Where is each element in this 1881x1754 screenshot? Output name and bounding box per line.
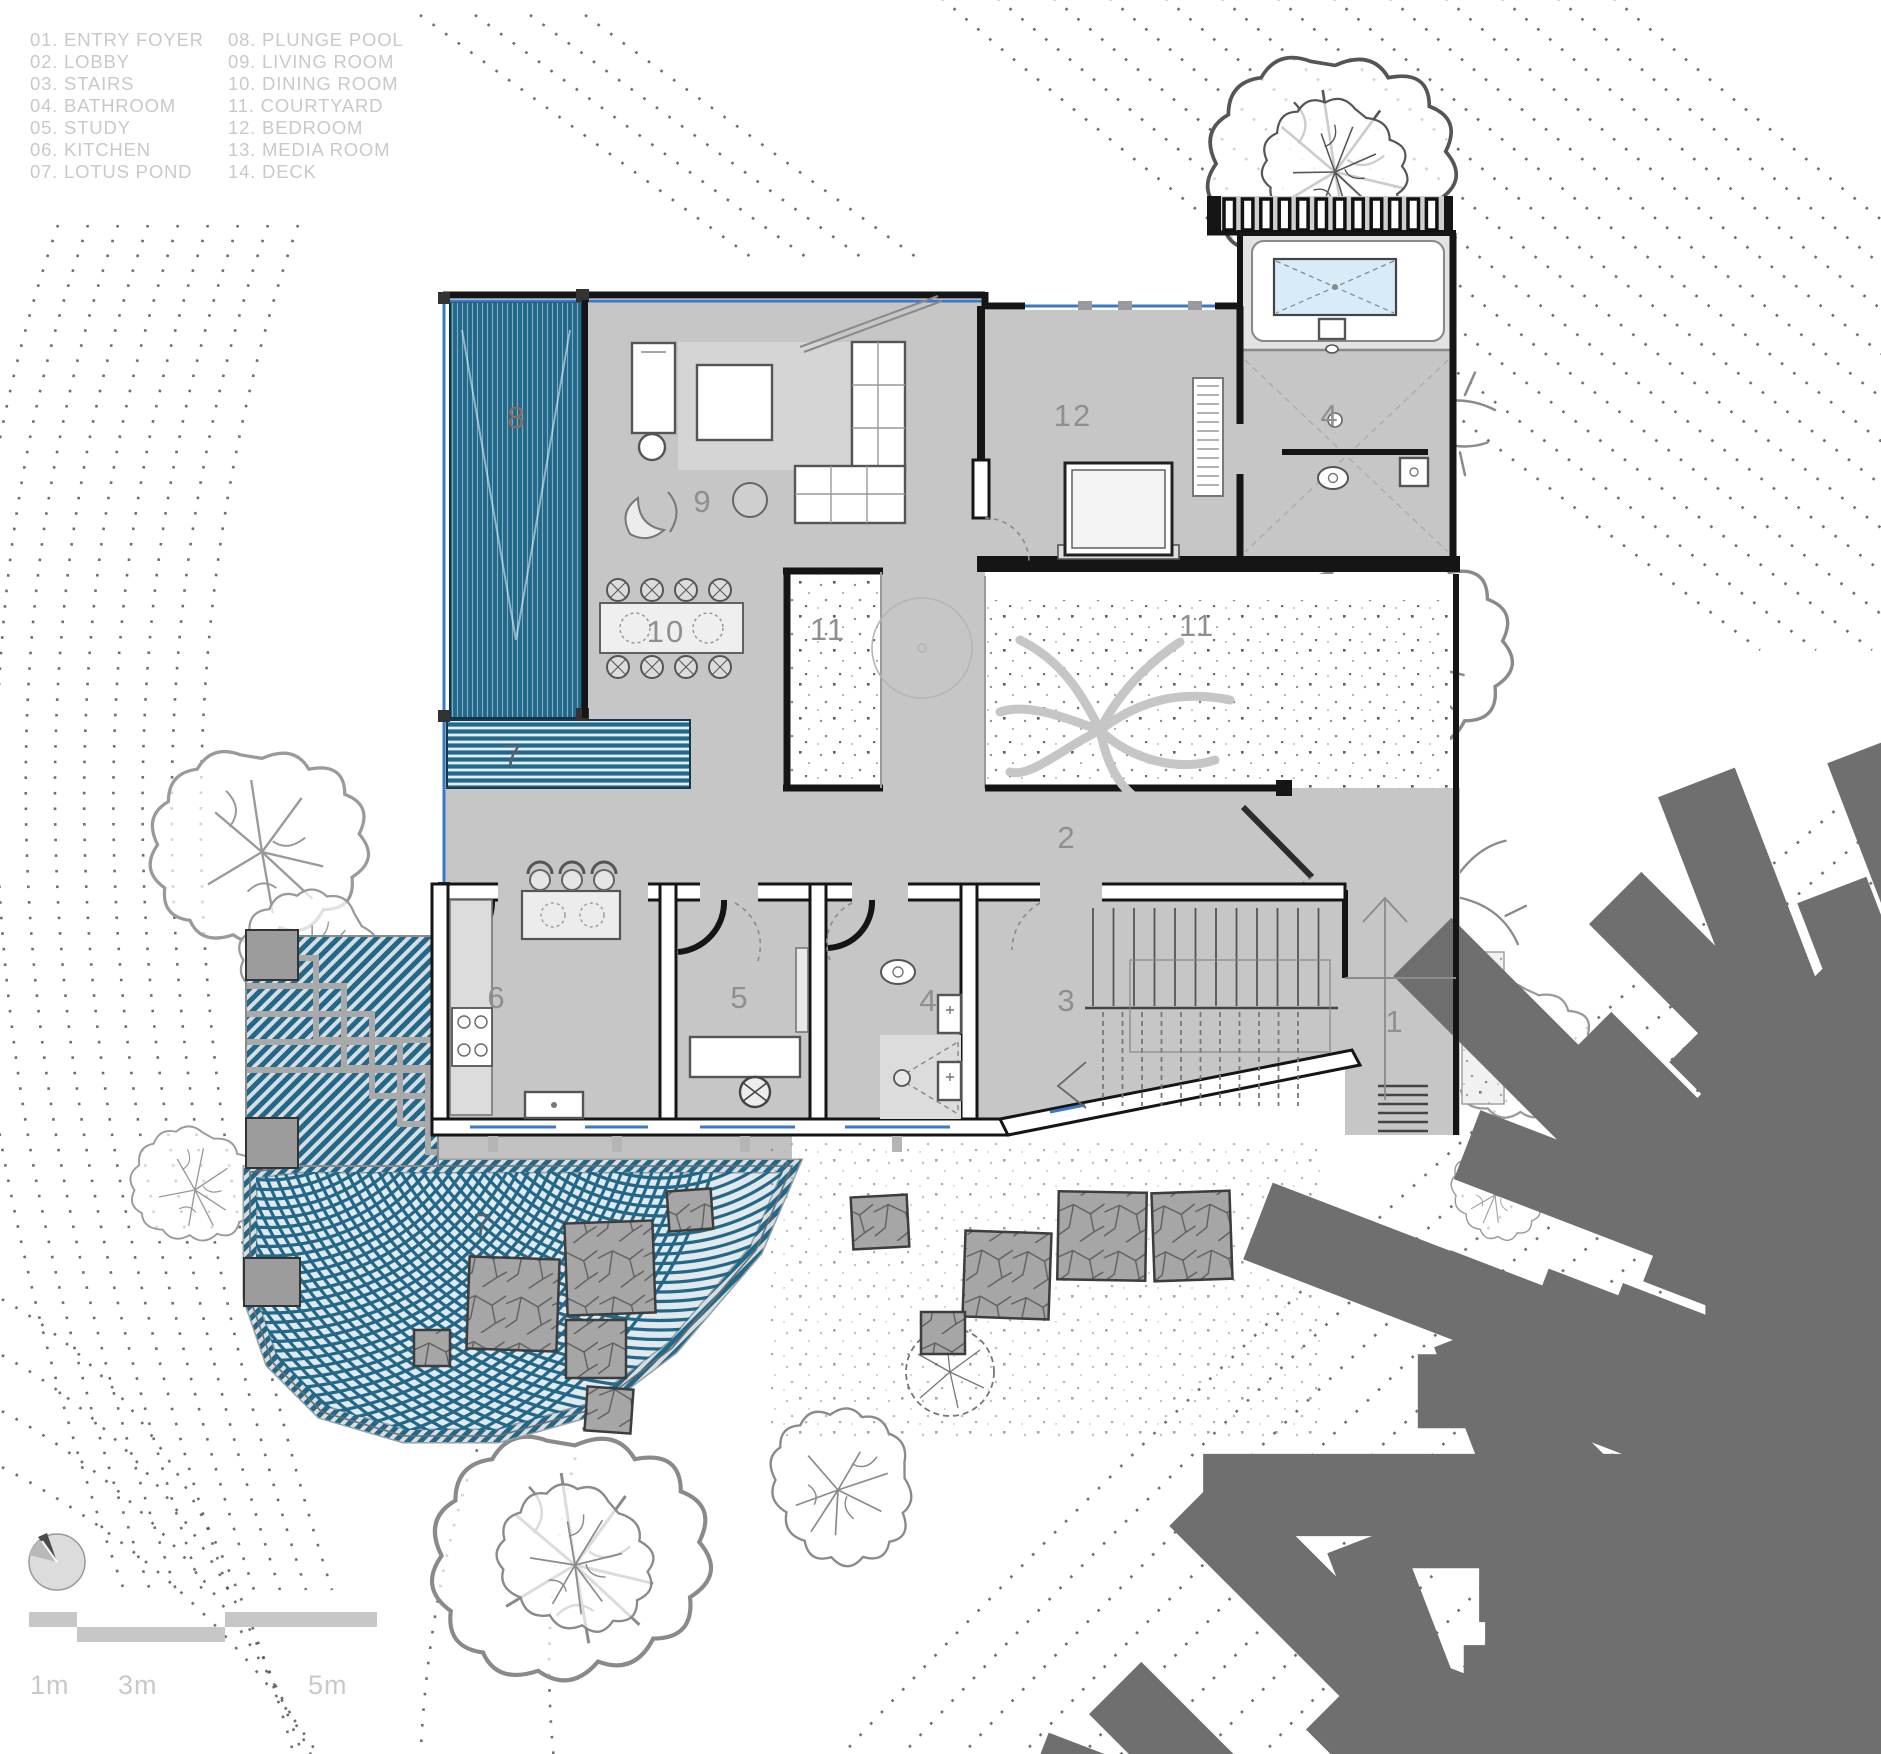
room-label-entry: 1 — [1385, 1004, 1404, 1039]
legend-item: 13. MEDIA ROOM — [228, 139, 390, 160]
deck-slat — [1261, 199, 1272, 230]
north-indicator — [29, 1533, 85, 1590]
planter-block — [246, 930, 298, 980]
lotus-pond-upper — [447, 720, 690, 788]
toilet — [1318, 467, 1348, 489]
legend-item: 08. PLUNGE POOL — [228, 29, 403, 50]
legend-item: 07. LOTUS POND — [30, 161, 192, 182]
sink — [1400, 458, 1428, 486]
room-label-stairs: 3 — [1057, 983, 1076, 1018]
planter-block — [246, 1118, 298, 1168]
deck-slat — [1353, 199, 1364, 230]
bed — [1072, 470, 1165, 548]
deck-slat — [1371, 199, 1382, 230]
room-label-study: 5 — [730, 980, 749, 1015]
legend-item: 09. LIVING ROOM — [228, 51, 394, 72]
side-table — [639, 434, 665, 460]
wardrobe — [1193, 378, 1223, 496]
room-label-dining: 10 — [647, 614, 685, 649]
deck-slat — [1426, 199, 1437, 230]
courtyard-left — [783, 568, 883, 790]
planter-block — [244, 1258, 300, 1306]
coffee-table — [697, 365, 772, 440]
stove — [452, 1008, 492, 1066]
room-label-courtyard-left: 11 — [810, 612, 846, 647]
kitchen-island — [522, 891, 620, 939]
legend-item: 05. STUDY — [30, 117, 131, 138]
desk — [690, 1037, 800, 1077]
legend-item: 12. BEDROOM — [228, 117, 363, 138]
deck-slat — [1298, 199, 1309, 230]
legend-item: 11. COURTYARD — [228, 95, 383, 116]
shelf — [796, 948, 808, 1032]
scale-label-3m: 3m — [118, 1670, 158, 1700]
deck-slat — [1408, 199, 1419, 230]
daybed — [632, 343, 675, 433]
floor-plan-sheet: 8 9 10 11 11 12 4 7 2 6 5 4 3 1 7 01. EN… — [0, 0, 1881, 1754]
room-label-lotus-upper: 7 — [503, 738, 522, 773]
floor-plan-drawing: 8 9 10 11 11 12 4 7 2 6 5 4 3 1 7 01. EN… — [0, 0, 1881, 1754]
deck-slat — [1334, 199, 1345, 230]
room-label-courtyard-right: 11 — [1179, 608, 1215, 643]
room-label-lotus-lower: 7 — [473, 1207, 492, 1242]
scale-label-1m: 1m — [30, 1670, 70, 1700]
deck-slat — [1242, 199, 1253, 230]
deck-slat — [1390, 199, 1401, 230]
legend-item: 10. DINING ROOM — [228, 73, 398, 94]
legend-item: 04. BATHROOM — [30, 95, 176, 116]
room-label-bedroom: 12 — [1054, 398, 1092, 433]
legend-item: 06. KITCHEN — [30, 139, 151, 160]
legend-item: 03. STAIRS — [30, 73, 134, 94]
deck-slat — [1316, 199, 1327, 230]
bathtub-room — [1252, 241, 1444, 353]
deck-slat — [1279, 199, 1290, 230]
room-label-living: 9 — [693, 484, 712, 519]
plunge-pool — [450, 302, 582, 718]
legend-item: 01. ENTRY FOYER — [30, 29, 204, 50]
legend-item: 02. LOBBY — [30, 51, 130, 72]
room-label-plunge-pool: 8 — [507, 400, 526, 435]
shower-head — [894, 1070, 910, 1086]
room-label-bathroom-lower: 4 — [919, 983, 938, 1018]
toilet — [881, 960, 915, 984]
room-label-bathroom-upper: 4 — [1320, 398, 1339, 433]
deck-slat — [1224, 199, 1235, 230]
room-label-lobby: 2 — [1057, 820, 1076, 855]
scale-label-5m: 5m — [308, 1670, 348, 1700]
side-table — [733, 483, 767, 517]
room-label-kitchen: 6 — [487, 980, 506, 1015]
legend-item: 14. DECK — [228, 161, 317, 182]
